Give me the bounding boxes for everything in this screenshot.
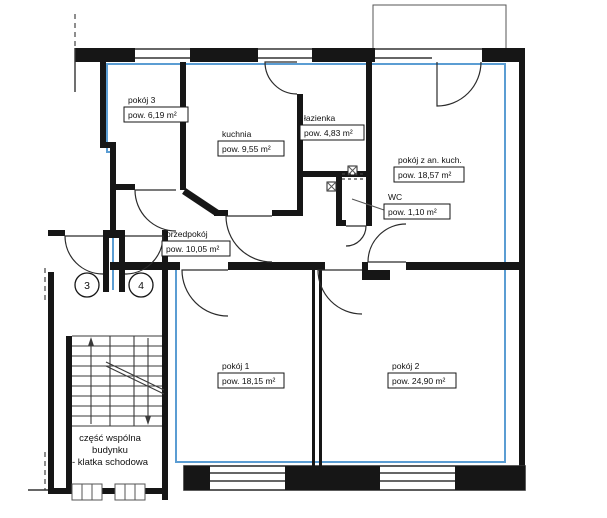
stairs: [72, 336, 164, 426]
room-label-pokoj-z-an-kuch: pokój z an. kuch. pow. 18,57 m²: [394, 155, 464, 182]
room-label-pokoj-1: pokój 1 pow. 18,15 m²: [218, 361, 284, 388]
room-name: WC: [388, 192, 402, 202]
room-area: pow. 4,83 m²: [304, 128, 353, 138]
unit-number: 4: [138, 280, 144, 292]
balcony-outline: [373, 5, 506, 48]
room-area: pow. 6,19 m²: [128, 110, 177, 120]
room-area: pow. 18,57 m²: [398, 170, 452, 180]
exterior-walls: [75, 14, 525, 490]
caption-line-3: - klatka schodowa: [72, 457, 149, 468]
stairs-up-arrow: [88, 337, 94, 424]
bathroom-door: [265, 62, 297, 94]
wc-door: [346, 226, 366, 246]
room3-door: [135, 190, 176, 231]
room-name: łazienka: [304, 113, 335, 123]
room-label-pokoj-2: pokój 2 pow. 24,90 m²: [388, 361, 456, 388]
room-area: pow. 18,15 m²: [222, 376, 276, 386]
room2-door: [318, 270, 362, 314]
room-area: pow. 24,90 m²: [392, 376, 446, 386]
caption-line-1: część wspólna: [79, 433, 141, 444]
room-area: pow. 1,10 m²: [388, 207, 437, 217]
room-label-pokoj-3: pokój 3 pow. 6,19 m²: [124, 95, 188, 122]
kitchen-door: [226, 216, 272, 262]
vent-shafts: [327, 166, 366, 191]
bigroom-door: [368, 224, 406, 262]
unit-marker-3: 3: [75, 273, 99, 297]
room-name: przedpokój: [166, 229, 208, 239]
room-label-kuchnia: kuchnia pow. 9,55 m²: [218, 129, 284, 156]
staircase-caption: część wspólna budynku - klatka schodowa: [72, 433, 149, 468]
floor-plan: pokój 3 pow. 6,19 m² kuchnia pow. 9,55 m…: [0, 0, 607, 518]
unit-number: 3: [84, 280, 90, 292]
room-name: pokój 3: [128, 95, 156, 105]
balcony-door: [437, 62, 481, 106]
room-area: pow. 10,05 m²: [166, 244, 220, 254]
room-label-lazienka: łazienka pow. 4,83 m²: [300, 113, 364, 140]
room-label-przedpokoj: przedpokój pow. 10,05 m²: [162, 229, 230, 256]
room-name: pokój 1: [222, 361, 250, 371]
staircase-window: [115, 484, 145, 500]
room-name: pokój z an. kuch.: [398, 155, 462, 165]
room-area: pow. 9,55 m²: [222, 144, 271, 154]
unit3-entrance-door: [65, 236, 103, 274]
room-name: kuchnia: [222, 129, 252, 139]
caption-line-2: budynku: [92, 445, 128, 456]
room-name: pokój 2: [392, 361, 420, 371]
staircase-window: [72, 484, 102, 500]
room1-door: [182, 270, 228, 316]
stairs-break-line: [106, 362, 164, 394]
unit-marker-4: 4: [129, 273, 153, 297]
